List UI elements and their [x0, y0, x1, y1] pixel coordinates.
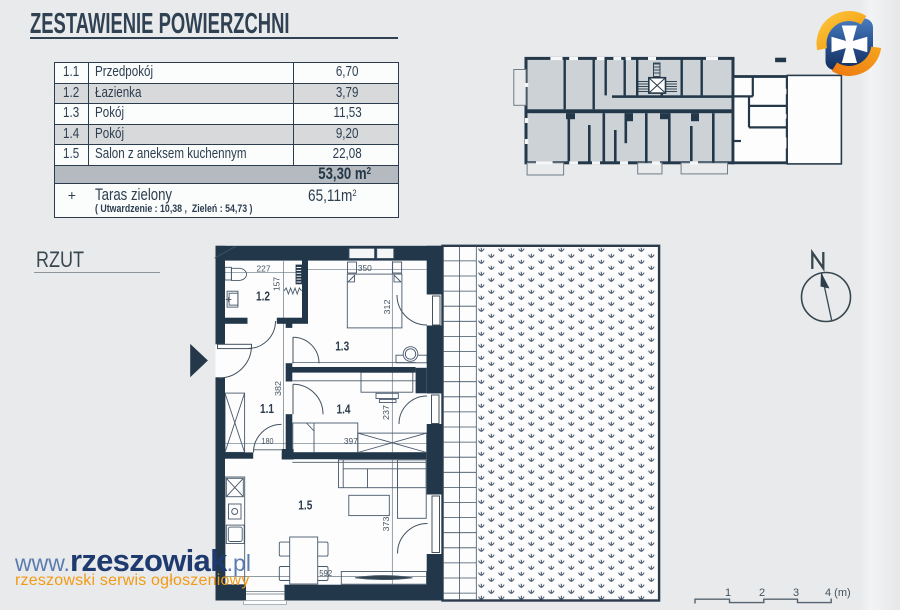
svg-text:2: 2 [759, 587, 765, 599]
svg-text:237: 237 [381, 405, 391, 420]
svg-text:397: 397 [344, 436, 358, 446]
svg-text:4 (m): 4 (m) [825, 587, 851, 599]
svg-text:350: 350 [358, 263, 372, 273]
svg-text:180: 180 [262, 436, 274, 446]
svg-text:1.5: 1.5 [298, 499, 312, 513]
svg-text:1.4: 1.4 [337, 403, 351, 417]
svg-text:1.2: 1.2 [256, 290, 270, 304]
svg-text:157: 157 [272, 277, 282, 291]
svg-text:312: 312 [382, 299, 392, 314]
svg-text:3: 3 [793, 587, 799, 599]
svg-text:382: 382 [273, 381, 283, 396]
svg-text:1: 1 [725, 587, 731, 599]
svg-text:1.3: 1.3 [335, 340, 349, 354]
svg-text:227: 227 [257, 264, 271, 274]
svg-text:373: 373 [381, 516, 391, 531]
svg-text:1.1: 1.1 [260, 402, 274, 416]
svg-text:592: 592 [319, 568, 332, 578]
